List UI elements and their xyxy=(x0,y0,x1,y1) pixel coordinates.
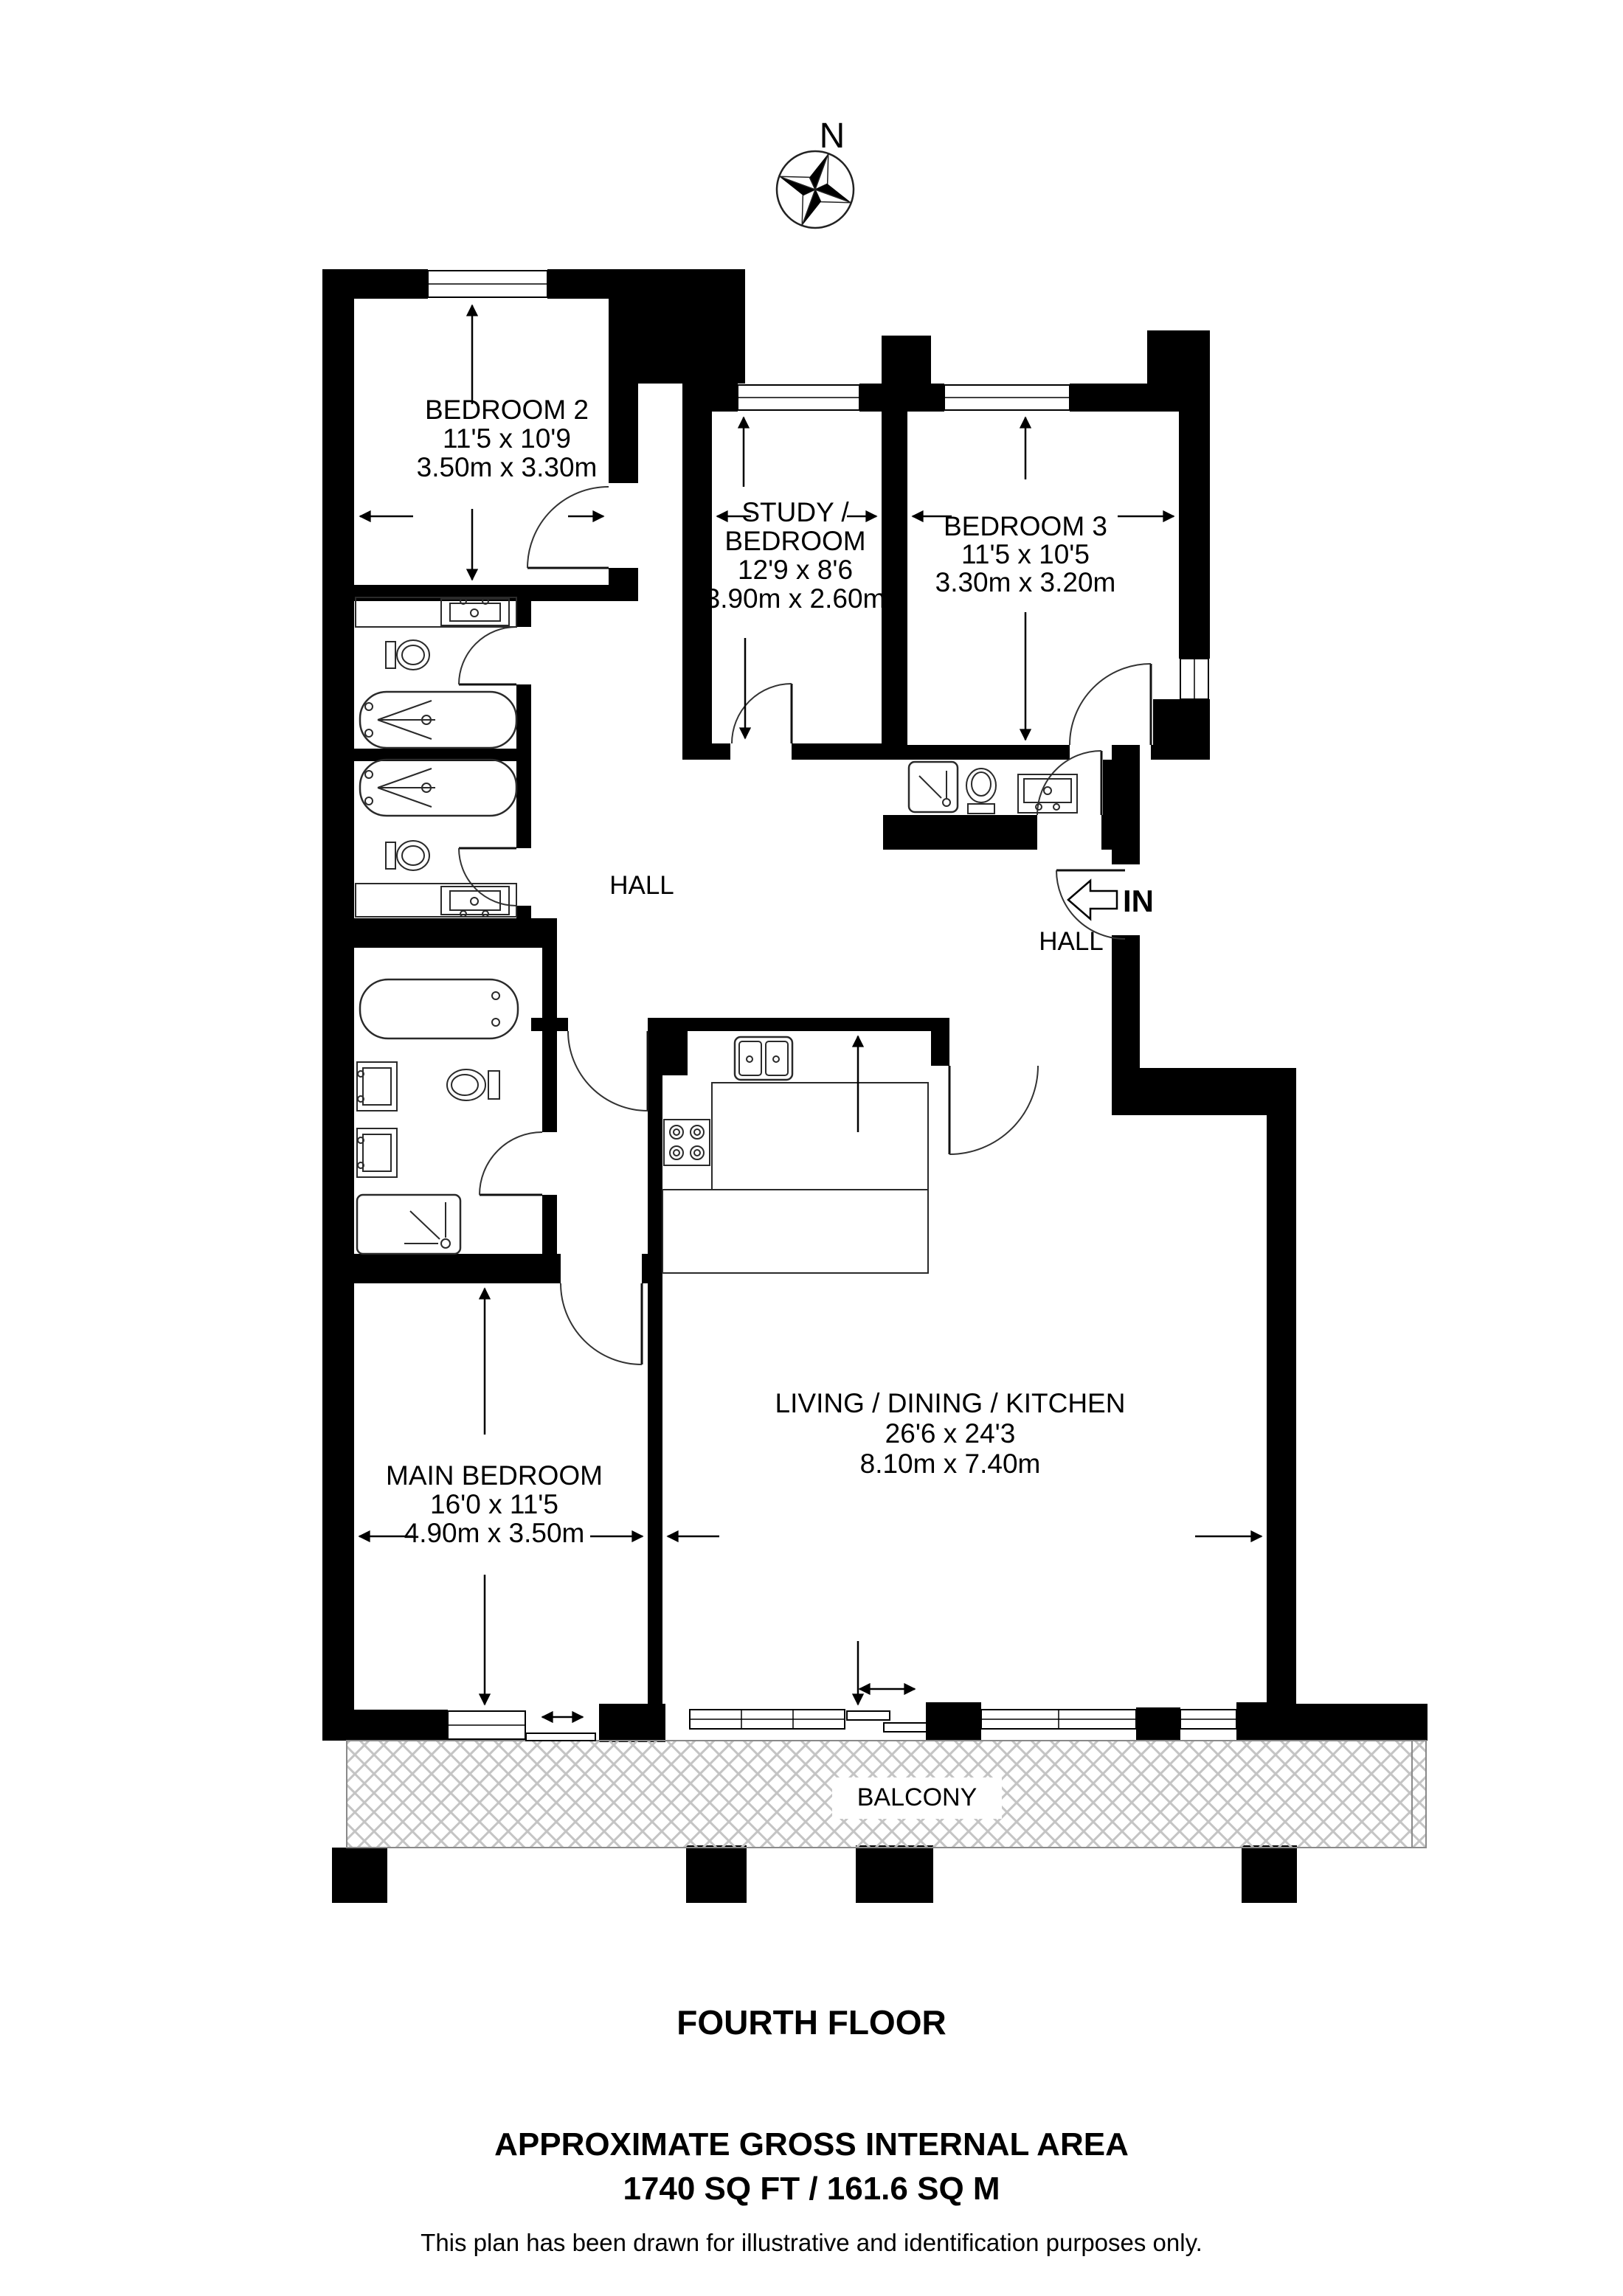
window xyxy=(690,1710,845,1729)
study-name-line2: BEDROOM xyxy=(724,526,865,556)
disclaimer: This plan has been drawn for illustrativ… xyxy=(421,2229,1202,2256)
ensuite-toilet xyxy=(447,1069,499,1100)
bedroom3-name: BEDROOM 3 xyxy=(944,511,1107,541)
area-title: APPROXIMATE GROSS INTERNAL AREA xyxy=(494,2126,1129,2163)
door-hall-living xyxy=(949,1066,1038,1154)
shower-room-shower xyxy=(909,762,958,812)
shower-room-toilet xyxy=(966,769,996,814)
room-bedroom3-label: BEDROOM 3 11'5 x 10'5 3.30m x 3.20m xyxy=(935,511,1116,597)
entry-label: IN xyxy=(1123,884,1154,918)
window xyxy=(944,385,1070,410)
sliding-door xyxy=(526,1733,595,1741)
floor-title: FOURTH FLOOR xyxy=(676,2003,946,2042)
bathroom2-toilet xyxy=(386,841,429,870)
footer: FOURTH FLOOR APPROXIMATE GROSS INTERNAL … xyxy=(421,2003,1202,2256)
door-bedroom3 xyxy=(1070,664,1151,745)
door-bathroom1 xyxy=(459,627,516,684)
north-compass-icon: N xyxy=(766,117,864,239)
kitchen-sink xyxy=(735,1037,792,1080)
window xyxy=(981,1710,1136,1729)
living-name: LIVING / DINING / KITCHEN xyxy=(775,1388,1126,1418)
bathroom2-bathtub xyxy=(360,760,516,816)
room-main-bedroom-label: MAIN BEDROOM 16'0 x 11'5 4.90m x 3.50m xyxy=(386,1460,603,1548)
window xyxy=(1180,1710,1236,1729)
floorplan-drawing: N xyxy=(0,0,1623,2296)
study-imperial: 12'9 x 8'6 xyxy=(738,555,853,585)
window xyxy=(1180,659,1208,699)
door-study xyxy=(732,684,792,743)
main-bedroom-imperial: 16'0 x 11'5 xyxy=(430,1489,558,1519)
living-imperial: 26'6 x 24'3 xyxy=(885,1418,1016,1449)
bedroom2-imperial: 11'5 x 10'9 xyxy=(443,423,571,454)
hall-east-label: HALL xyxy=(1039,927,1104,956)
ensuite-sink xyxy=(357,1062,397,1111)
room-bedroom2-label: BEDROOM 2 11'5 x 10'9 3.50m x 3.30m xyxy=(417,395,598,482)
door-main-bedroom xyxy=(561,1283,642,1364)
hall-west-label: HALL xyxy=(609,871,674,900)
kitchen-hob xyxy=(664,1120,710,1165)
room-labels: BEDROOM 2 11'5 x 10'9 3.50m x 3.30m STUD… xyxy=(386,395,1125,1548)
door-ensuite xyxy=(480,1132,542,1195)
sliding-door xyxy=(847,1711,927,1732)
study-metric: 3.90m x 2.60m xyxy=(705,583,886,614)
balcony-label: BALCONY xyxy=(857,1783,977,1811)
main-bedroom-metric: 4.90m x 3.50m xyxy=(404,1518,585,1548)
bedroom2-metric: 3.50m x 3.30m xyxy=(417,452,598,482)
ensuite-bathtub xyxy=(360,979,518,1038)
doors xyxy=(459,487,1151,1364)
door-shower-room xyxy=(1037,751,1101,815)
ensuite-shower xyxy=(357,1195,460,1254)
bathroom1-toilet xyxy=(386,640,429,670)
room-living-label: LIVING / DINING / KITCHEN 26'6 x 24'3 8.… xyxy=(775,1388,1126,1479)
window xyxy=(428,271,547,297)
window xyxy=(738,385,859,410)
bedroom3-imperial: 11'5 x 10'5 xyxy=(961,539,1090,569)
living-metric: 8.10m x 7.40m xyxy=(860,1449,1041,1479)
door-inner-hall xyxy=(568,1031,648,1111)
door-bathroom2 xyxy=(459,848,516,906)
room-study-label: STUDY / BEDROOM 12'9 x 8'6 3.90m x 2.60m xyxy=(705,497,886,614)
door-bedroom2 xyxy=(527,487,609,568)
bathroom1-bathtub xyxy=(360,692,516,748)
main-bedroom-name: MAIN BEDROOM xyxy=(386,1460,603,1491)
bedroom3-metric: 3.30m x 3.20m xyxy=(935,567,1116,597)
entry-marker: IN xyxy=(1068,881,1154,919)
entry-arrow-icon xyxy=(1068,881,1117,919)
ensuite-sink xyxy=(357,1128,397,1177)
balcony-area: BALCONY xyxy=(347,1741,1426,1848)
bathroom1-sink xyxy=(356,597,516,627)
kitchen-counter xyxy=(662,1083,928,1273)
north-label: N xyxy=(820,117,845,156)
study-name-line1: STUDY / xyxy=(741,497,849,527)
bedroom2-name: BEDROOM 2 xyxy=(425,395,589,425)
window xyxy=(448,1711,525,1739)
area-value: 1740 SQ FT / 161.6 SQ M xyxy=(623,2171,1000,2207)
floorplan-page: N xyxy=(0,0,1623,2296)
